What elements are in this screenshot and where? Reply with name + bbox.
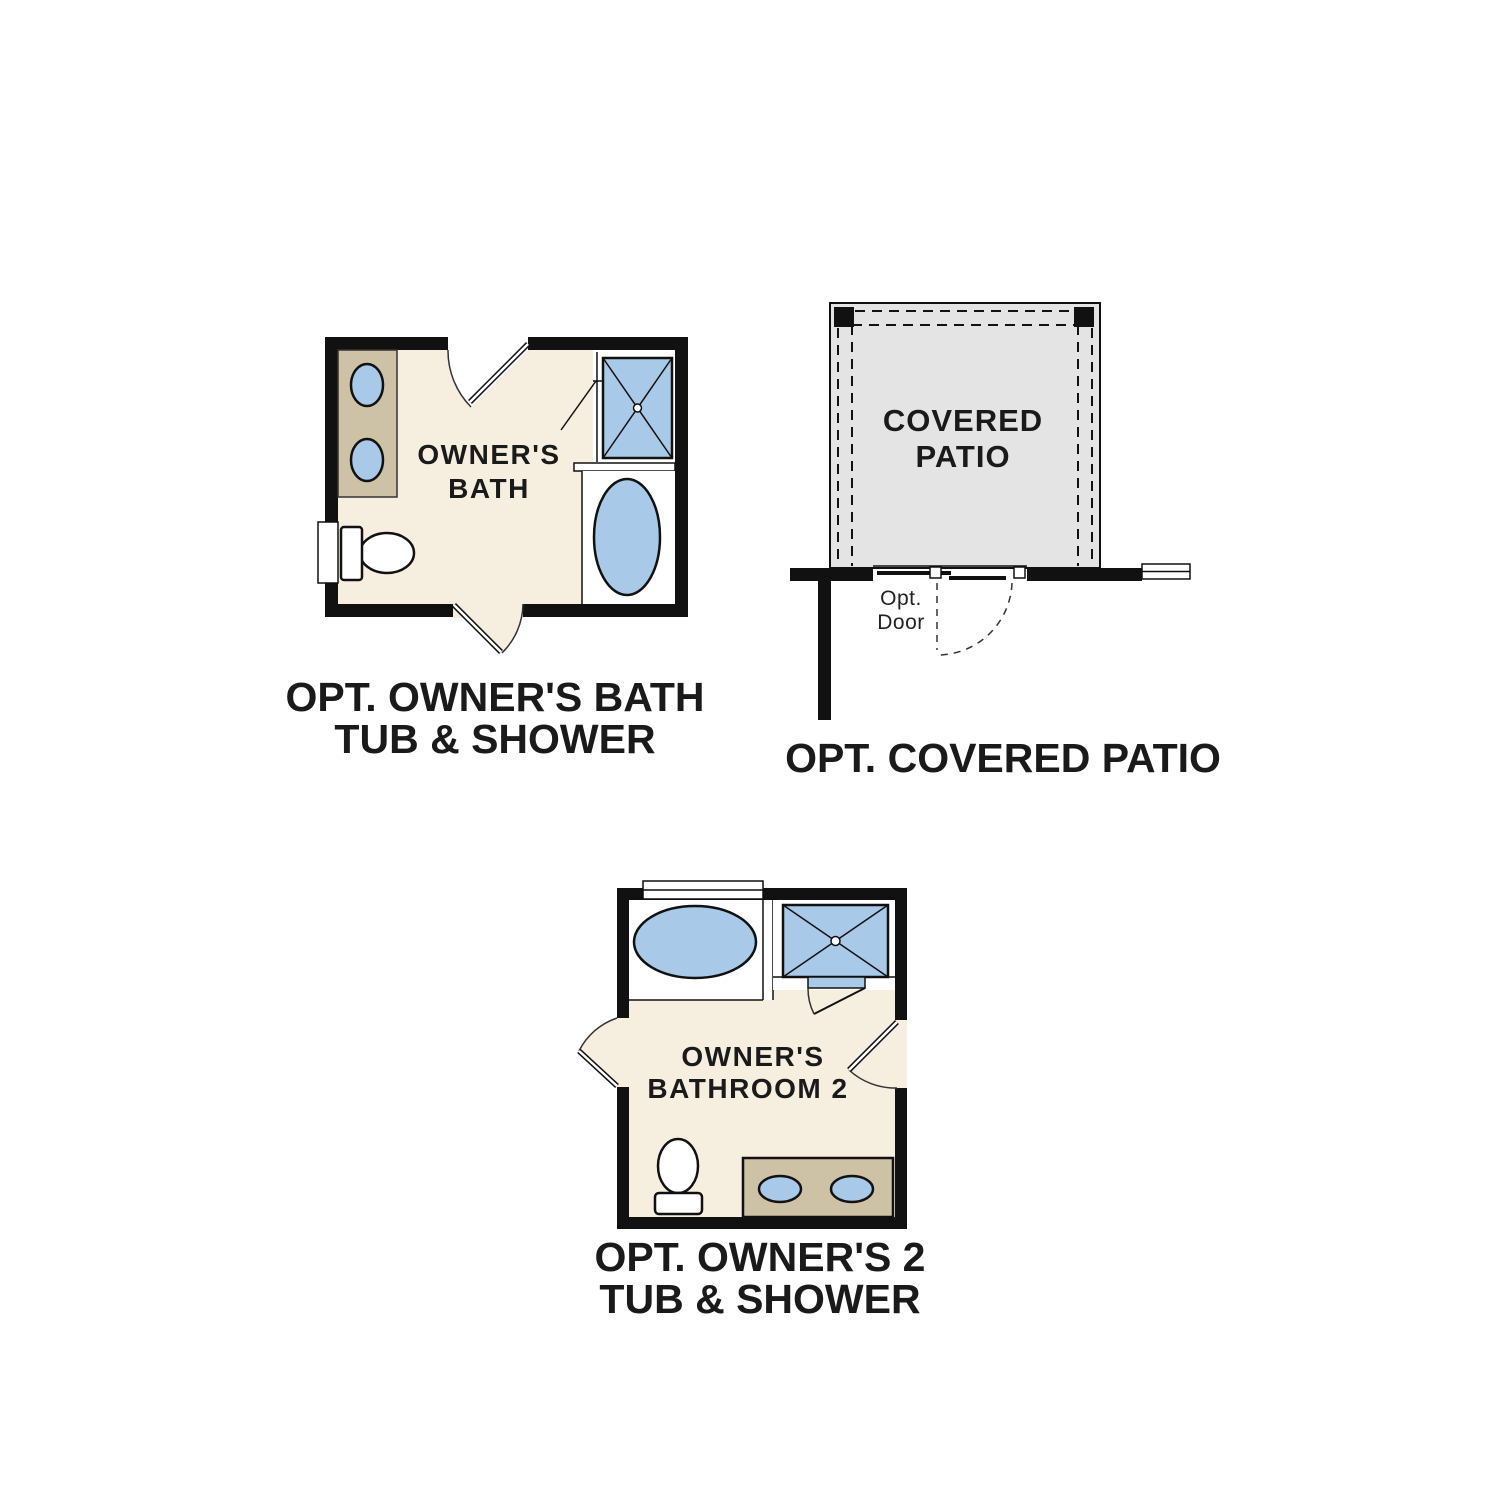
house-wall-right xyxy=(1027,568,1142,581)
tub-deck-edge xyxy=(574,463,675,471)
shower-drain xyxy=(831,937,840,946)
bathtub xyxy=(594,479,660,595)
opt-door-label-line2: Door xyxy=(877,611,925,634)
house-wall-left xyxy=(790,568,873,581)
sink-left-top xyxy=(351,364,383,406)
room-label-line2: BATH xyxy=(448,473,530,504)
toilet-wall-window xyxy=(318,522,338,583)
toilet-bowl xyxy=(360,533,414,573)
door-jamb-right xyxy=(1014,567,1025,578)
patio-label-line2: PATIO xyxy=(915,439,1010,474)
covered-patio-caption: OPT. COVERED PATIO xyxy=(763,737,1243,779)
caption-line2: TUB & SHOWER xyxy=(250,718,740,760)
room-label-line1: OWNER'S xyxy=(417,439,560,470)
room-label-line1: OWNER'S xyxy=(681,1041,824,1072)
house-wall-vertical xyxy=(818,568,831,720)
toilet-tank xyxy=(341,527,362,580)
opt-door-label-line1: Opt. xyxy=(880,587,922,610)
caption-line1: OPT. COVERED PATIO xyxy=(763,737,1243,779)
sink-left-bottom xyxy=(351,439,383,481)
room-label-line2: BATHROOM 2 xyxy=(647,1073,848,1104)
covered-patio-plan: COVERED PATIO Opt. Door xyxy=(765,295,1205,735)
patio-post-left xyxy=(834,307,854,327)
floorplan-sheet: OWNER'S BATH OPT. OWNER'S BATH TUB & SHO… xyxy=(0,0,1500,1500)
owners-bath-caption: OPT. OWNER'S BATH TUB & SHOWER xyxy=(250,676,740,760)
shower-entry-curb xyxy=(808,977,865,988)
bathtub xyxy=(634,906,756,978)
door-opening-right xyxy=(895,1020,907,1088)
patio-label-line1: COVERED xyxy=(883,403,1043,438)
door-jamb-left xyxy=(930,567,941,578)
caption-line1: OPT. OWNER'S BATH xyxy=(250,676,740,718)
owners-bathroom2-plan: OWNER'S BATHROOM 2 xyxy=(560,870,920,1240)
caption-line1: OPT. OWNER'S 2 xyxy=(515,1236,1005,1278)
patio-post-right xyxy=(1074,307,1094,327)
owners-bathroom2-caption: OPT. OWNER'S 2 TUB & SHOWER xyxy=(515,1236,1005,1320)
toilet-bowl xyxy=(658,1139,698,1193)
toilet-tank xyxy=(655,1193,702,1214)
owners-bath-plan: OWNER'S BATH xyxy=(300,330,710,680)
door-opening-top xyxy=(448,336,528,351)
opt-door-swing-arc-dashed xyxy=(940,583,1012,655)
sink-left xyxy=(759,1176,801,1202)
caption-line2: TUB & SHOWER xyxy=(515,1278,1005,1320)
door-opening-left xyxy=(616,1018,629,1087)
sink-right xyxy=(831,1176,873,1202)
shower-drain xyxy=(634,404,642,412)
